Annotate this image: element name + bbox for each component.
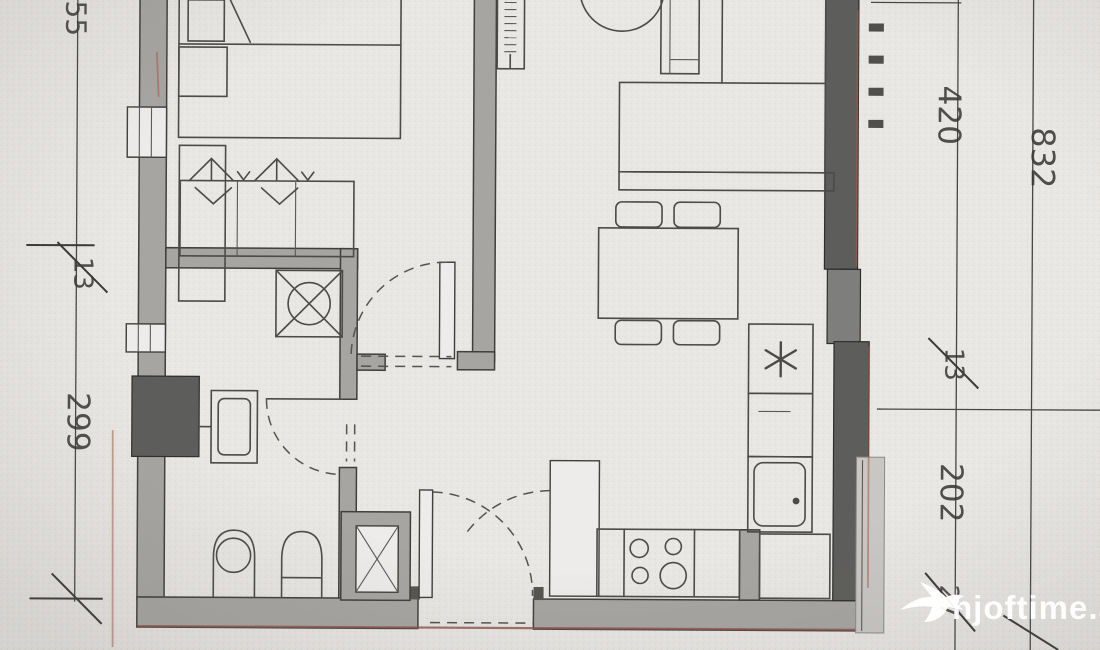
floor-plan-photo: 55 13 299 420 13 202 27 832 hjoftime.al <box>0 0 1100 650</box>
photo-vignette <box>0 0 1100 650</box>
watermark: hjoftime.al <box>900 582 1100 626</box>
floor-plan-canvas: 55 13 299 420 13 202 27 832 hjoftime.al <box>0 0 1100 650</box>
watermark-text: hjoftime.al <box>952 589 1100 626</box>
